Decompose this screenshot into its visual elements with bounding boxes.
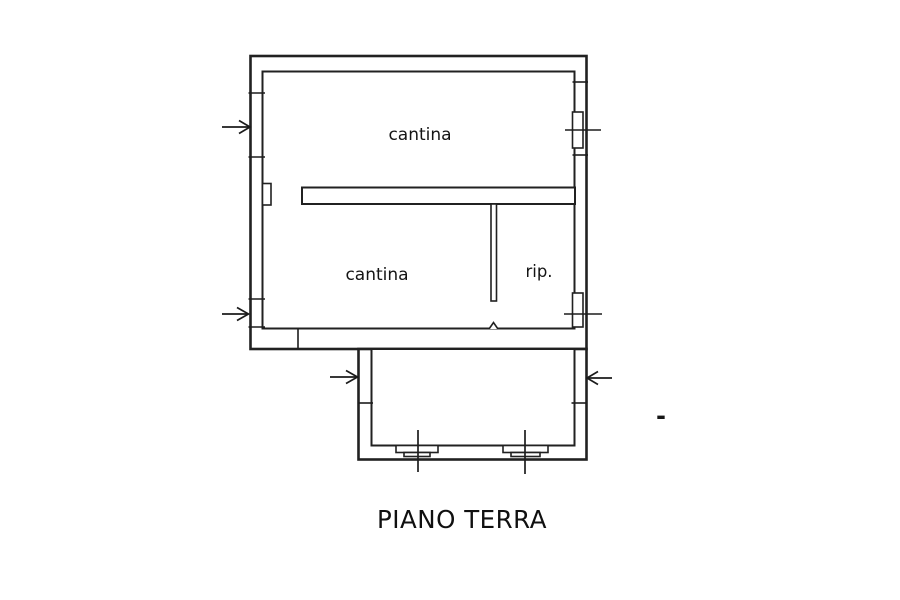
entrance-arrow-upper-left (222, 121, 250, 134)
window-lower-right (573, 293, 584, 327)
room-label-cantina-upper: cantina (388, 125, 451, 145)
entrance-arrow-annex-right (587, 372, 612, 385)
dash-mark: - (656, 402, 666, 430)
entrance-arrow-annex-left (330, 371, 358, 384)
entrance-arrow-lower-left (222, 308, 249, 321)
annex-walls (359, 349, 587, 460)
interior-wall-horizontal (302, 188, 575, 205)
room-label-ripostiglio: rip. (525, 262, 552, 281)
floor-plan-drawing: cantina cantina rip. PIANO TERRA - (0, 0, 900, 600)
plan-title: PIANO TERRA (377, 505, 547, 534)
annex-inner-wall (372, 349, 575, 446)
room-label-cantina-lower: cantina (345, 265, 408, 285)
door-sill-left-lip (404, 453, 430, 457)
floor-plan-canvas: cantina cantina rip. PIANO TERRA - (0, 0, 900, 600)
partition-wall-vertical (491, 204, 497, 301)
wall-pilaster (263, 184, 272, 206)
door-sill-left (396, 446, 438, 453)
